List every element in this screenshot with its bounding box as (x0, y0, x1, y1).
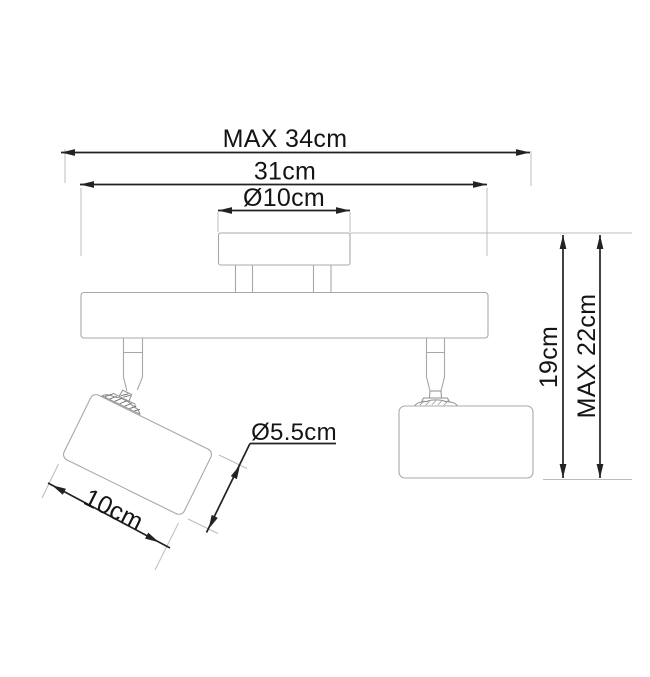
dimension-canopy-diameter-label: Ø10cm (243, 184, 325, 212)
arrowhead (80, 181, 94, 188)
dimension-max-width-label: MAX 34cm (223, 125, 348, 153)
ceiling-canopy (219, 233, 351, 265)
arrowhead (336, 207, 350, 214)
dimension-spot-diameter: Ø5.5cm (206, 419, 337, 533)
mounting-stems (236, 265, 332, 293)
arrowhead (218, 207, 232, 214)
arrowhead (597, 464, 604, 478)
right-swivel-joint (415, 391, 458, 406)
arrowhead (145, 533, 161, 546)
arrowhead (597, 235, 604, 249)
dimension-track-width-label: 31cm (254, 158, 316, 186)
right-spot-head (399, 406, 533, 478)
arrowhead (516, 149, 530, 156)
dimension-max-width: MAX 34cm (61, 125, 530, 156)
dimension-max-height: MAX 22cm (573, 235, 603, 478)
dimension-max-height-label: MAX 22cm (573, 294, 601, 419)
dimension-height-label: 19cm (535, 326, 563, 388)
dimension-height: 19cm (535, 235, 566, 478)
spotlight-dimension-diagram: MAX 34cm 31cm Ø10cm 19cm MAX 22cm Ø5.5cm (0, 0, 650, 677)
arrowhead (560, 464, 567, 478)
arrowhead (61, 149, 75, 156)
dimension-spot-diameter-label: Ø5.5cm (251, 419, 337, 446)
right-stem (427, 338, 445, 391)
arrowhead (473, 181, 487, 188)
left-stem (124, 338, 143, 391)
dimension-canopy-diameter: Ø10cm (218, 184, 350, 214)
technical-drawing-canvas: MAX 34cm 31cm Ø10cm 19cm MAX 22cm Ø5.5cm (0, 0, 650, 677)
track-bar (81, 293, 488, 339)
arrowhead (50, 482, 66, 495)
arrowhead (560, 235, 567, 249)
